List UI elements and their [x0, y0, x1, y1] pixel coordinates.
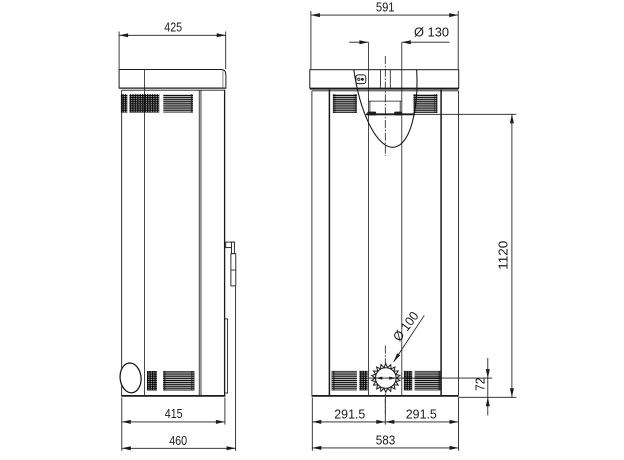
svg-text:460: 460 [169, 433, 187, 448]
svg-text:415: 415 [165, 406, 183, 421]
svg-text:291.5: 291.5 [406, 406, 437, 421]
svg-text:Ø 130: Ø 130 [414, 25, 449, 40]
svg-text:583: 583 [376, 432, 396, 447]
svg-text:72: 72 [472, 377, 487, 391]
svg-text:425: 425 [164, 20, 182, 35]
svg-text:591: 591 [376, 0, 395, 15]
svg-text:291.5: 291.5 [334, 406, 365, 421]
svg-text:1120: 1120 [496, 241, 511, 270]
